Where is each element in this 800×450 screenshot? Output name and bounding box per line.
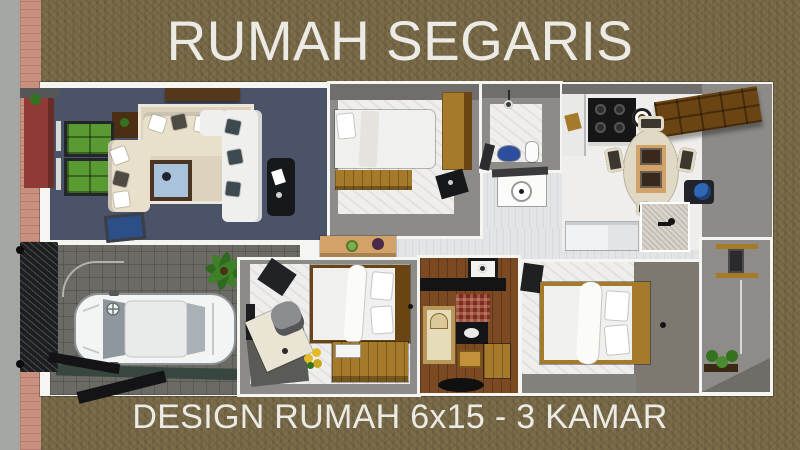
- living-room: [50, 88, 335, 240]
- tv-panel: [104, 212, 147, 243]
- fence-bush: [30, 94, 41, 105]
- page-title: RUMAH SEGARIS: [8, 8, 792, 73]
- window-frame: [56, 158, 61, 190]
- kitchen-top-wall: [562, 84, 702, 94]
- placemat: [640, 148, 662, 165]
- bed-3-pillow: [605, 291, 629, 320]
- dining-chair: [638, 116, 664, 131]
- fridge: [566, 222, 638, 250]
- bed-2-pillow: [371, 272, 393, 300]
- bedroom-3-wall-bottom: [522, 374, 636, 393]
- sunflower-bouquet: [302, 346, 324, 370]
- shower-head-icon: [504, 100, 513, 109]
- burner: [614, 122, 625, 133]
- bed-3-pillow: [605, 325, 629, 355]
- floorplan: [40, 82, 773, 396]
- desk-knob: [282, 348, 288, 354]
- page-caption: DESIGN RUMAH 6x15 - 3 KAMAR: [0, 398, 800, 437]
- side-table: [267, 158, 295, 216]
- car-top-view: [73, 289, 237, 369]
- burner: [595, 104, 606, 115]
- kitchen-island: [642, 204, 688, 250]
- nook-basin: [464, 328, 479, 338]
- potted-plant: [704, 348, 742, 376]
- door-knob: [408, 304, 413, 309]
- plant-on-cabinet: [120, 118, 129, 127]
- bed-platform: [335, 170, 412, 190]
- bedroom-3: [522, 262, 702, 393]
- water-heater: [526, 142, 538, 162]
- service-area: [702, 240, 770, 392]
- console-plant: [346, 240, 358, 252]
- scene: RUMAH SEGARIS DESIGN RUMAH 6x15 - 3 KAMA…: [0, 0, 800, 450]
- gate-hinge: [16, 360, 24, 368]
- burner: [614, 104, 625, 115]
- kitchen-dining: [562, 84, 772, 250]
- water-dispenser-bottle: [694, 183, 711, 200]
- sofa-pillow: [113, 191, 130, 208]
- sofa-pillow: [225, 119, 242, 136]
- coffee-table: [150, 160, 192, 201]
- tv-stand-dot: [448, 180, 453, 185]
- bamboo-blind-roll: [728, 249, 744, 273]
- sink-vanity: [498, 174, 546, 206]
- island-faucet: [668, 218, 675, 225]
- bed-1-blanket: [359, 111, 380, 168]
- door-knob: [660, 322, 666, 328]
- console-flowers: [372, 238, 384, 250]
- wardrobe: [442, 92, 472, 170]
- bed-2: [310, 265, 410, 343]
- bed-3-blanket: [576, 281, 602, 364]
- bedroom-2: [240, 260, 418, 394]
- vanity-counter: [492, 167, 548, 178]
- bamboo-blind: [716, 273, 758, 278]
- window-frame: [56, 121, 61, 151]
- books-on-chest: [336, 345, 360, 357]
- dining-chair: [604, 147, 625, 174]
- wall-shelf-top: [165, 88, 240, 101]
- stove: [588, 98, 636, 142]
- gate-hinge: [16, 246, 24, 254]
- prayer-room: [420, 258, 518, 393]
- bathroom: [482, 84, 560, 170]
- sectional-sofa-wing: [200, 110, 226, 136]
- wall-shelf-lower: [64, 158, 114, 196]
- sofa-pillow: [227, 149, 243, 165]
- bathroom-wall: [482, 84, 560, 98]
- placemat: [640, 171, 662, 188]
- cup-on-table: [276, 192, 282, 198]
- floor-mat-gold: [458, 350, 482, 368]
- dining-chair: [676, 147, 697, 174]
- sink-drain: [519, 189, 524, 194]
- coffee-table-bowl: [162, 172, 171, 181]
- prayer-rug-arch: [431, 314, 447, 328]
- bedroom-1: [330, 84, 480, 236]
- sofa-pillow: [171, 114, 188, 131]
- ornament-wall: [456, 294, 490, 322]
- bed-2-pillow: [371, 306, 393, 333]
- toilet: [498, 146, 520, 161]
- dark-oval-mat: [438, 378, 484, 392]
- coffee-cup: [478, 264, 487, 273]
- laundry-pole: [740, 280, 742, 354]
- bed-3: [540, 282, 650, 364]
- sofa-pillow: [225, 181, 241, 197]
- burner: [595, 122, 606, 133]
- wooden-crate: [484, 344, 510, 378]
- prayer-counter: [420, 278, 506, 291]
- bed-1-pillow: [337, 113, 355, 139]
- front-fence: [24, 98, 54, 188]
- console-table: [320, 236, 396, 258]
- wall-shelf-upper: [64, 121, 114, 157]
